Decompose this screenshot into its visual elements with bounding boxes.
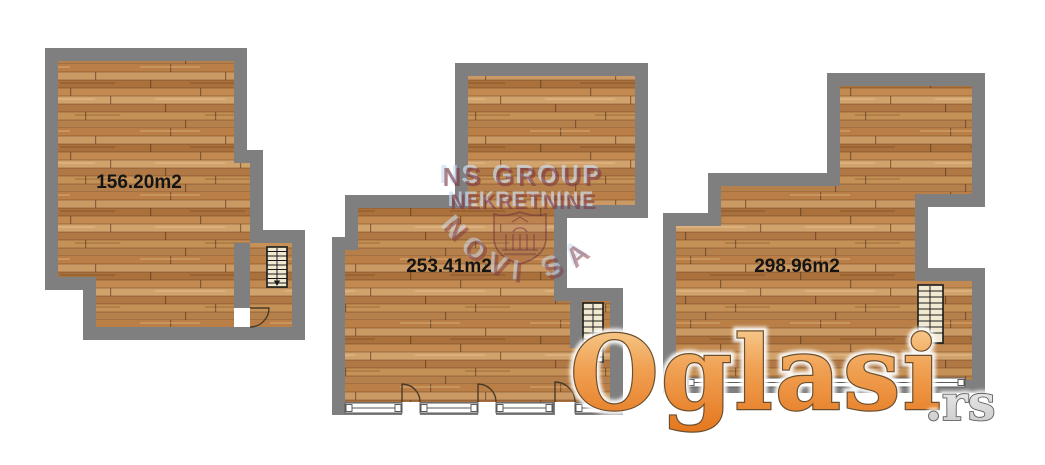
brand-text: Oglasi (570, 314, 943, 434)
floor-plan-unit-1: 156.20m2 (45, 48, 305, 340)
staircase-icon (267, 247, 287, 287)
window-icon (496, 403, 553, 413)
area-label: 156.20m2 (96, 172, 182, 193)
site-watermark: Oglasi Oglasi .rs .rs (570, 314, 995, 434)
agency-subtitle: NEKRETNINE (451, 191, 598, 214)
unit-2-door-opening (402, 402, 420, 415)
unit-1-door-opening (234, 308, 250, 327)
window-icon (345, 403, 402, 413)
tld-text: .rs (925, 374, 995, 432)
floorplan-image: 156.20m2 (0, 0, 1045, 465)
unit-1-stair-partition-wall (234, 243, 250, 308)
area-label: 298.96m2 (754, 256, 840, 277)
unit-2-door-opening (478, 402, 496, 415)
window-icon (420, 403, 478, 413)
